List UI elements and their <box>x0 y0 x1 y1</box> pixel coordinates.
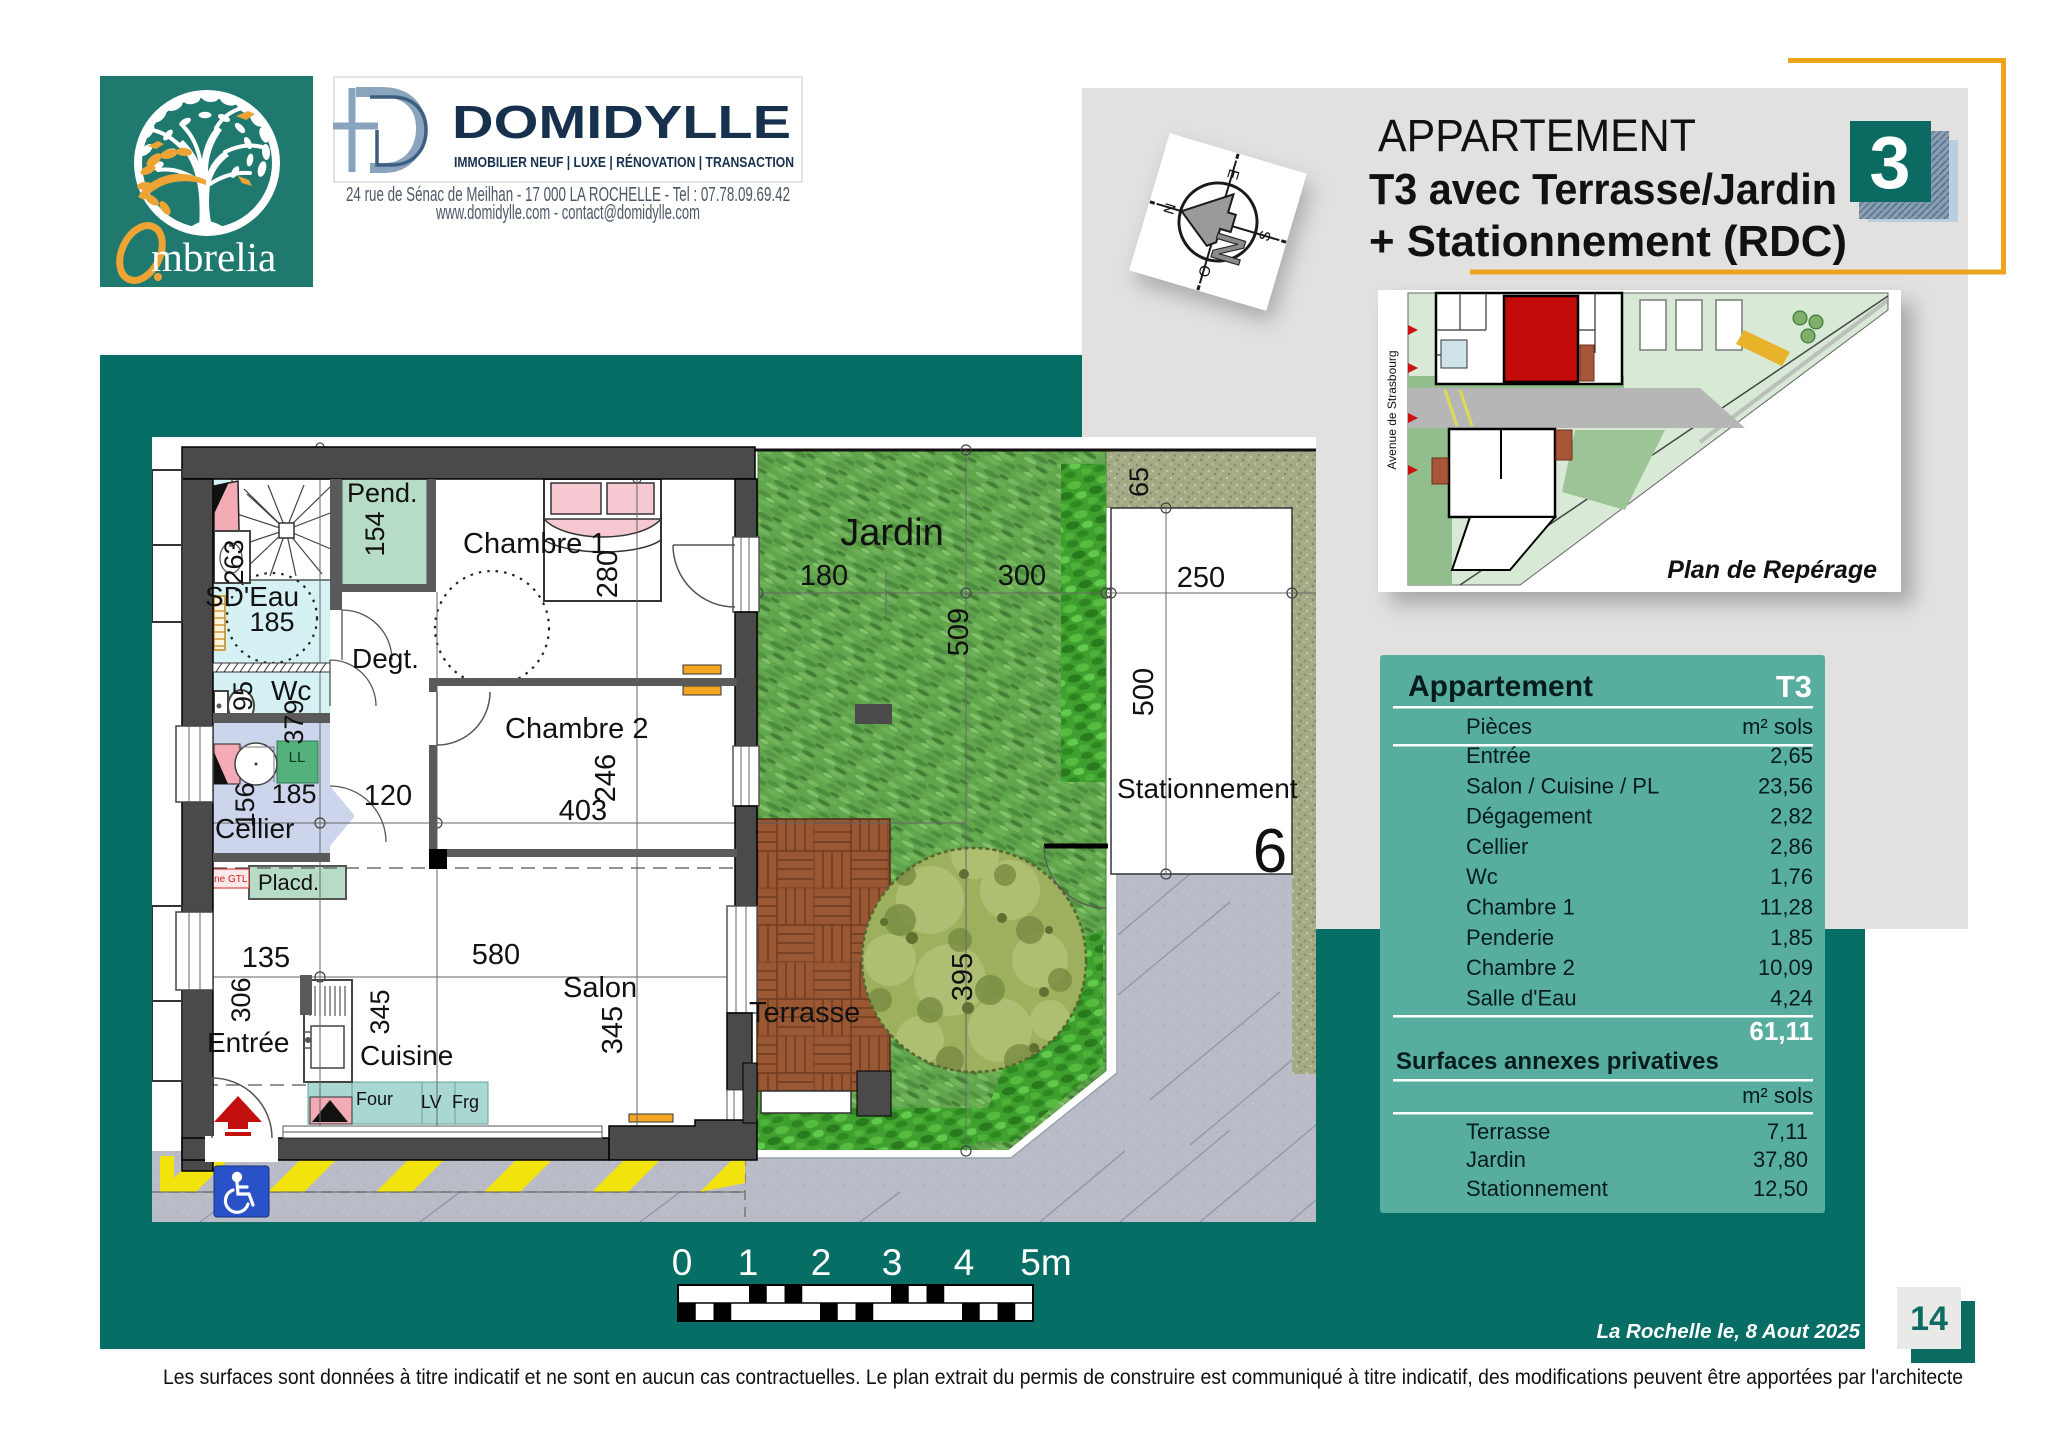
svg-text:403: 403 <box>559 795 607 827</box>
svg-text:1,85: 1,85 <box>1770 925 1813 950</box>
svg-text:mbrelia: mbrelia <box>151 234 276 280</box>
svg-text:Penderie: Penderie <box>1466 925 1554 950</box>
svg-text:3: 3 <box>882 1242 903 1283</box>
svg-text:Appartement: Appartement <box>1408 670 1593 703</box>
svg-text:306: 306 <box>226 977 256 1022</box>
svg-text:T3 avec Terrasse/Jardin: T3 avec Terrasse/Jardin <box>1369 165 1837 214</box>
svg-text:5m: 5m <box>1020 1242 1071 1283</box>
svg-text:Salle d'Eau: Salle d'Eau <box>1466 985 1577 1010</box>
svg-text:Plan de Repérage: Plan de Repérage <box>1667 556 1877 584</box>
svg-text:Placd.: Placd. <box>258 870 319 895</box>
svg-text:Stationnement: Stationnement <box>1466 1176 1608 1201</box>
svg-text:345: 345 <box>597 1006 629 1054</box>
svg-text:Chambre 2: Chambre 2 <box>505 713 648 745</box>
svg-text:509: 509 <box>943 608 975 656</box>
svg-text:Surfaces annexes privatives: Surfaces annexes privatives <box>1396 1048 1719 1075</box>
svg-text:LV: LV <box>421 1092 442 1112</box>
svg-text:2,82: 2,82 <box>1770 804 1813 829</box>
svg-text:180: 180 <box>800 560 848 592</box>
svg-text:7,11: 7,11 <box>1767 1119 1808 1144</box>
svg-text:Terrasse: Terrasse <box>749 997 860 1029</box>
svg-text:10,09: 10,09 <box>1758 955 1813 980</box>
svg-text:Entrée: Entrée <box>1466 743 1531 768</box>
svg-text:185: 185 <box>271 779 316 809</box>
svg-text:345: 345 <box>365 989 395 1034</box>
svg-text:Frg: Frg <box>452 1092 479 1112</box>
svg-text:2: 2 <box>811 1242 832 1283</box>
svg-text:6: 6 <box>1253 817 1287 886</box>
svg-text:0: 0 <box>672 1242 693 1283</box>
svg-text:+ Stationnement (RDC): + Stationnement (RDC) <box>1369 217 1847 266</box>
svg-text:IMMOBILIER NEUF | LUXE | RÉNOV: IMMOBILIER NEUF | LUXE | RÉNOVATION | TR… <box>454 154 794 171</box>
svg-text:Entrée: Entrée <box>207 1027 290 1058</box>
svg-text:14: 14 <box>1910 1300 1948 1338</box>
svg-text:250: 250 <box>1177 562 1225 594</box>
svg-text:580: 580 <box>472 939 520 971</box>
svg-text:APPARTEMENT: APPARTEMENT <box>1378 110 1696 161</box>
svg-text:Cellier: Cellier <box>1466 834 1528 859</box>
svg-text:LL: LL <box>289 749 306 766</box>
svg-text:Stationnement: Stationnement <box>1117 773 1298 804</box>
svg-text:Dégagement: Dégagement <box>1466 804 1592 829</box>
svg-text:Pend.: Pend. <box>347 478 418 508</box>
svg-text:3: 3 <box>1869 121 1910 204</box>
svg-text:Salon: Salon <box>563 972 637 1004</box>
svg-text:Terrasse: Terrasse <box>1466 1119 1550 1144</box>
svg-text:DOMIDYLLE: DOMIDYLLE <box>452 96 791 148</box>
svg-text:T3: T3 <box>1776 669 1812 704</box>
svg-text:11,28: 11,28 <box>1760 895 1813 920</box>
svg-text:La Rochelle le, 8 Aout 2025: La Rochelle le, 8 Aout 2025 <box>1596 1320 1860 1343</box>
svg-text:Four: Four <box>356 1089 393 1109</box>
svg-text:Wc: Wc <box>1466 864 1498 889</box>
svg-text:65: 65 <box>1124 467 1154 497</box>
svg-text:154: 154 <box>360 511 390 556</box>
svg-text:Chambre 1: Chambre 1 <box>463 528 606 560</box>
svg-text:Chambre 2: Chambre 2 <box>1466 955 1575 980</box>
svg-text:61,11: 61,11 <box>1749 1016 1813 1046</box>
svg-text:37,80: 37,80 <box>1753 1147 1808 1172</box>
svg-text:95: 95 <box>228 681 258 711</box>
svg-text:185: 185 <box>249 607 294 637</box>
svg-text:379: 379 <box>279 699 309 744</box>
svg-text:Avenue de Strasbourg: Avenue de Strasbourg <box>1385 350 1399 469</box>
svg-text:500: 500 <box>1128 668 1160 716</box>
svg-text:4,24: 4,24 <box>1770 985 1813 1010</box>
svg-text:m² sols: m² sols <box>1742 714 1813 739</box>
svg-text:263: 263 <box>219 539 249 584</box>
svg-text:135: 135 <box>242 942 290 974</box>
svg-text:12,50: 12,50 <box>1753 1176 1808 1201</box>
svg-text:23,56: 23,56 <box>1758 773 1813 798</box>
svg-text:Les surfaces sont données à: Les surfaces sont données à titre indica… <box>163 1366 1963 1389</box>
svg-text:www.domidylle.com - contact@do: www.domidylle.com - contact@domidylle.co… <box>435 202 700 224</box>
svg-text:Jardin: Jardin <box>840 512 944 554</box>
svg-text:4: 4 <box>954 1242 975 1283</box>
svg-text:Salon / Cuisine / PL: Salon / Cuisine / PL <box>1466 773 1659 798</box>
svg-text:1,76: 1,76 <box>1770 864 1813 889</box>
svg-text:Chambre 1: Chambre 1 <box>1466 895 1575 920</box>
svg-text:2,65: 2,65 <box>1770 743 1813 768</box>
svg-text:2,86: 2,86 <box>1770 834 1813 859</box>
svg-text:Cuisine: Cuisine <box>360 1040 453 1071</box>
svg-text:120: 120 <box>364 780 412 812</box>
svg-text:395: 395 <box>947 953 979 1001</box>
svg-text:m² sols: m² sols <box>1742 1083 1813 1108</box>
svg-text:1: 1 <box>738 1242 759 1283</box>
svg-text:Degt.: Degt. <box>352 643 419 674</box>
svg-text:Pièces: Pièces <box>1466 714 1532 739</box>
svg-text:280: 280 <box>592 550 624 598</box>
svg-text:Cellier: Cellier <box>215 813 294 844</box>
svg-text:300: 300 <box>998 560 1046 592</box>
svg-text:Jardin: Jardin <box>1466 1147 1526 1172</box>
